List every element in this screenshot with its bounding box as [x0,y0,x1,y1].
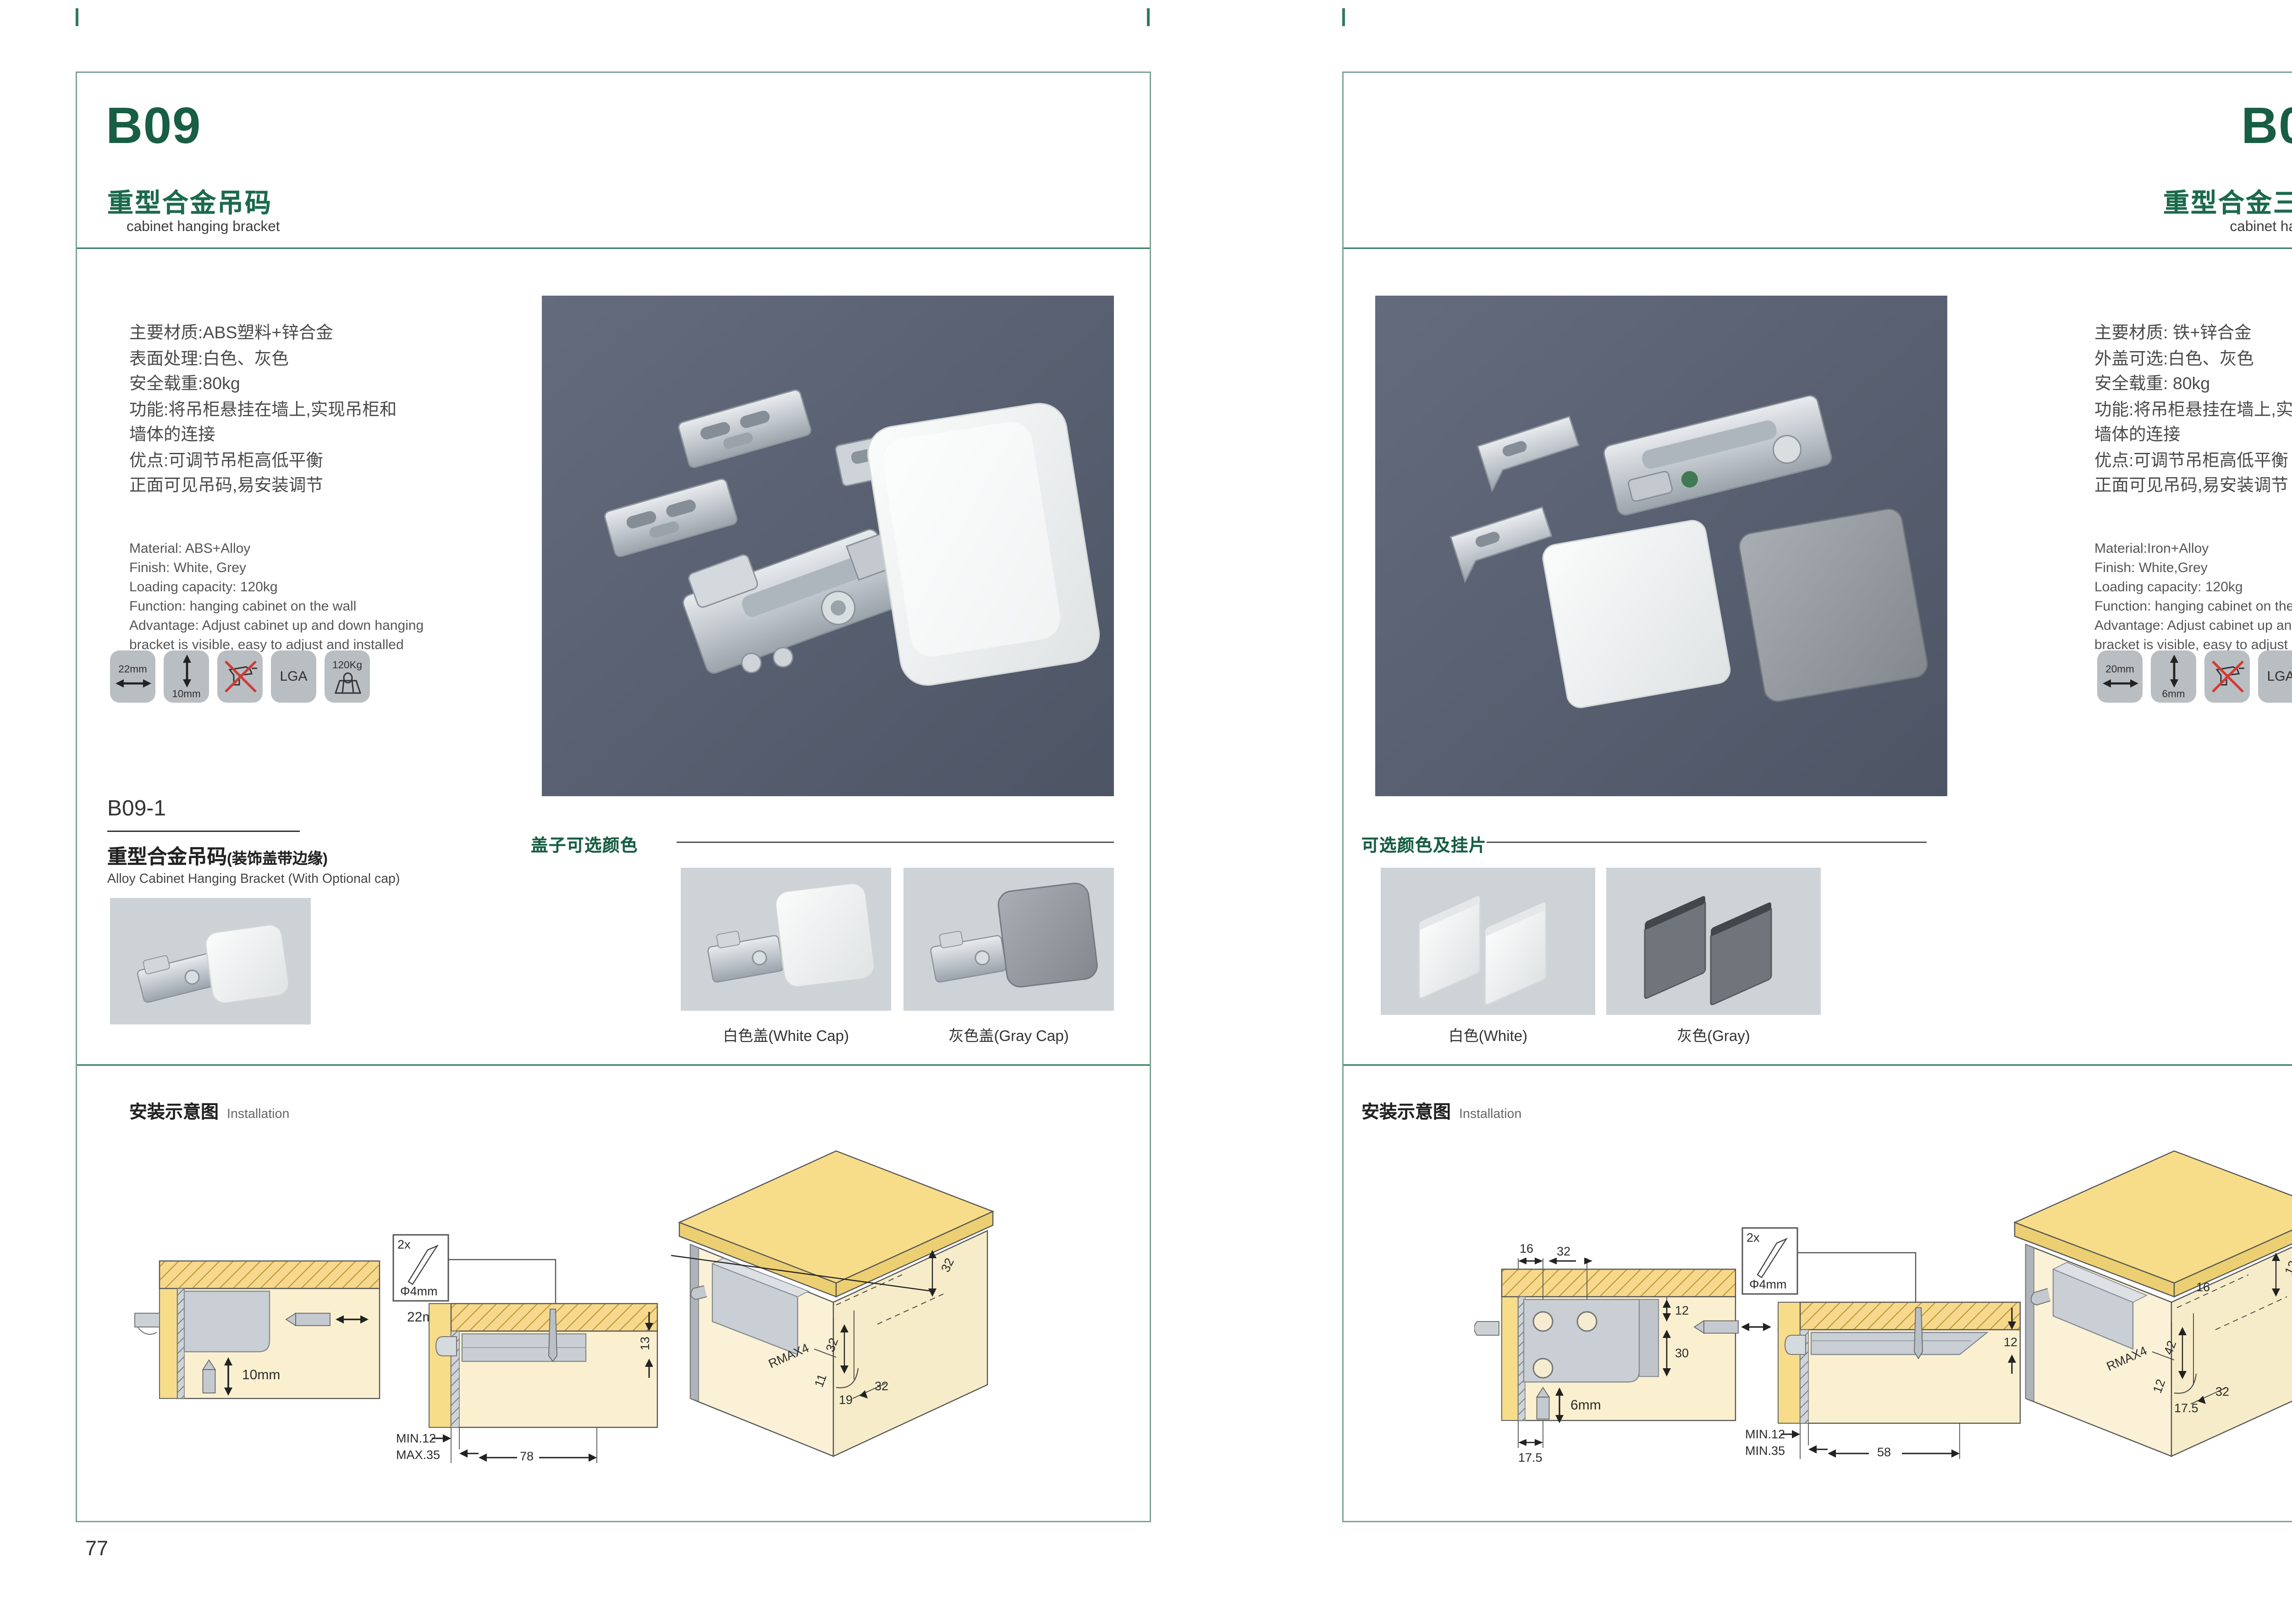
horizontal-arrow-icon [2102,676,2138,690]
vertical-arrow-icon [180,654,193,687]
spec-line: 主要材质:ABS塑料+锌合金 [129,320,480,346]
installation-heading-en: Installation [1459,1107,1521,1122]
dim-label: MAX.35 [396,1448,440,1462]
white-cap-photo [1381,868,1595,1015]
no-drill-icon [2209,659,2245,694]
spec-line: Advantage: Adjust cabinet up and down ha… [129,617,480,637]
dim-label: MIN.35 [1745,1444,1785,1458]
caps-section-rule [677,842,1114,843]
spec-line: 墙体的连接 [129,422,480,448]
vertical-arrow-icon [2167,654,2181,687]
spec-line: Loading capacity: 120kg [2094,579,2292,598]
icon-no-drill [2204,650,2250,703]
spec-line: 安全载重: 80kg [2094,371,2292,397]
caps-section-heading: 盖子可选颜色 [531,831,638,857]
install-diagram-screw-section: 2x Φ4mm 12 MIN.12 MIN.35 58 [1740,1225,2035,1473]
feature-icons: 20mm 6mm LGA 120Kg [2097,650,2292,703]
horizontal-arrow-icon [115,676,151,690]
dim-label: MIN.12 [396,1431,436,1445]
icon-label: 10mm [172,688,201,699]
gray-cap-label: 灰色(Gray) [1606,1024,1821,1046]
page-right: B09-3 重型合金三孔吊码 cabinet hanging bracket [1342,72,2292,1522]
icon-label: LGA [2267,669,2292,684]
spec-line: 优点:可调节吊柜高低平衡 [129,448,480,473]
spec-line: Finish: White, Grey [129,560,480,579]
dim-label: 6mm [1570,1400,1601,1414]
spec-line: Function: hanging cabinet on the wall [2094,598,2292,617]
product-title-zh: 重型合金三孔吊码 [2163,183,2292,220]
spec-line: Material:Iron+Alloy [2094,540,2292,560]
header-rule [77,248,1150,249]
spec-line: 安全载重:80kg [129,371,480,397]
section-divider [77,1064,1150,1066]
dim-label: 12 [1675,1304,1689,1317]
crop-mark [1147,8,1150,26]
icon-label: 6mm [2162,688,2185,699]
icon-no-drill [217,650,263,703]
installation-heading: 安装示意图Installation [129,1097,289,1123]
product-photo [1375,296,1947,796]
catalog-spread: B09 重型合金吊码 cabinet hanging bracket [0,0,2292,1624]
dim-label: 17.5 [2174,1401,2198,1415]
screw-qty: 2x [397,1238,411,1251]
white-cap [1541,518,1732,710]
icon-width-adjust: 20mm [2097,650,2143,703]
white-cap-photo [681,868,891,1011]
spec-line: 正面可见吊码,易安装调节 [2094,473,2292,499]
white-cap [864,400,1103,689]
dim-label: 16 [1520,1242,1533,1255]
product-title-en: cabinet hanging bracket [127,219,280,235]
no-drill-icon [222,659,258,694]
page-left: B09 重型合金吊码 cabinet hanging bracket [76,72,1151,1522]
gray-cap-label: 灰色盖(Gray Cap) [904,1024,1114,1046]
weight-icon [330,672,365,694]
screw-dia: Φ4mm [1749,1277,1787,1291]
spec-line: 功能:将吊柜悬挂在墙上,实现吊柜和 [2094,397,2292,423]
dim-label: 58 [1877,1445,1891,1459]
spec-line: Loading capacity: 120kg [129,579,480,598]
screw-qty: 2x [1747,1231,1760,1244]
icon-label: 22mm [118,664,147,675]
crop-mark [76,8,78,26]
icon-label: LGA [280,669,307,684]
spec-line: Material: ABS+Alloy [129,540,480,560]
dim-label: 78 [520,1449,534,1463]
dim-label: 13 [638,1337,652,1350]
dim-label: 10mm [242,1370,280,1383]
icon-lga-cert: LGA [2258,650,2292,703]
product-code: B09-3 [2241,98,2292,155]
icon-load-capacity: 120Kg [325,650,370,703]
spec-line: 正面可见吊码,易安装调节 [129,473,480,499]
page-number-left: 77 [85,1537,108,1561]
icon-height-adjust: 10mm [164,650,209,703]
spec-line: Function: hanging cabinet on the wall [129,598,480,617]
spec-line: 表面处理:白色、灰色 [129,346,480,372]
product-title-zh: 重型合金吊码 [107,183,272,220]
white-cap-label: 白色盖(White Cap) [681,1024,891,1046]
gray-cap [1737,507,1929,704]
white-cap-label: 白色(White) [1381,1024,1595,1046]
spec-line: 主要材质: 铁+锌合金 [2094,320,2292,346]
sub-title-main: 重型合金吊码 [107,847,227,869]
icon-lga-cert: LGA [271,650,316,703]
section-divider [1344,1064,2292,1066]
crop-mark [1342,8,1345,26]
spec-line: 墙体的连接 [2094,422,2292,448]
installation-heading-zh: 安装示意图 [129,1101,219,1122]
caps-section-rule [1487,842,1927,843]
spec-line: 优点:可调节吊柜高低平衡 [2094,448,2292,473]
dim-label: 32 [875,1379,888,1393]
spec-line: 功能:将吊柜悬挂在墙上,实现吊柜和 [129,397,480,423]
product-code: B09 [106,98,201,155]
sub-product-title-zh: 重型合金吊码(装饰盖带边缘) [107,842,328,870]
dim-label: 30 [1675,1346,1689,1360]
header-rule [1344,248,2292,249]
dim-label: 32 [1557,1244,1570,1258]
install-diagram-perspective: 32 32 RMAX4 11 19 32 [671,1143,1001,1466]
product-title-en: cabinet hanging bracket [2230,219,2292,235]
gray-cap-photo [1606,868,1821,1015]
sub-product-code: B09-1 [107,798,166,822]
sub-product-rule [107,831,300,832]
spec-line: Advantage: Adjust cabinet up and down ha… [2094,617,2292,637]
screw-dia: Φ4mm [400,1284,438,1298]
dim-label: 16 [2196,1280,2210,1294]
caps-section-heading: 可选颜色及挂片 [1361,831,1487,857]
gray-cap-photo [904,868,1114,1011]
specs-en: Material: ABS+Alloy Finish: White, Grey … [129,540,480,656]
dim-label: 17.5 [1518,1451,1543,1464]
icon-label: 120Kg [332,660,362,671]
sub-title-note: (装饰盖带边缘) [227,851,328,868]
installation-heading-zh: 安装示意图 [1361,1101,1451,1122]
install-diagram-perspective: 12 16 42 RMAX4 12 17.5 32 [2006,1143,2292,1466]
spec-line: Finish: White,Grey [2094,560,2292,579]
product-photo [542,296,1114,796]
spec-line: 外盖可选:白色、灰色 [2094,346,2292,372]
feature-icons: 22mm 10mm LGA 120Kg [110,650,370,703]
icon-height-adjust: 6mm [2151,650,2196,703]
dim-label: 32 [2215,1385,2229,1398]
installation-heading: 安装示意图Installation [1361,1097,1521,1123]
sub-product-title-en: Alloy Cabinet Hanging Bracket (With Opti… [107,872,400,887]
icon-label: 20mm [2105,664,2134,675]
icon-width-adjust: 22mm [110,650,155,703]
specs-zh: 主要材质: 铁+锌合金 外盖可选:白色、灰色 安全载重: 80kg 功能:将吊柜… [2094,320,2292,499]
specs-zh: 主要材质:ABS塑料+锌合金 表面处理:白色、灰色 安全载重:80kg 功能:将… [129,320,480,499]
sub-product-photo [110,898,311,1024]
install-diagram-screw-section: 2x Φ4mm 13 MIN.12 MAX.35 78 [391,1232,666,1473]
specs-en: Material:Iron+Alloy Finish: White,Grey L… [2094,540,2292,656]
dim-label: MIN.12 [1745,1427,1785,1441]
dim-label: 19 [839,1393,853,1407]
installation-heading-en: Installation [227,1107,289,1122]
